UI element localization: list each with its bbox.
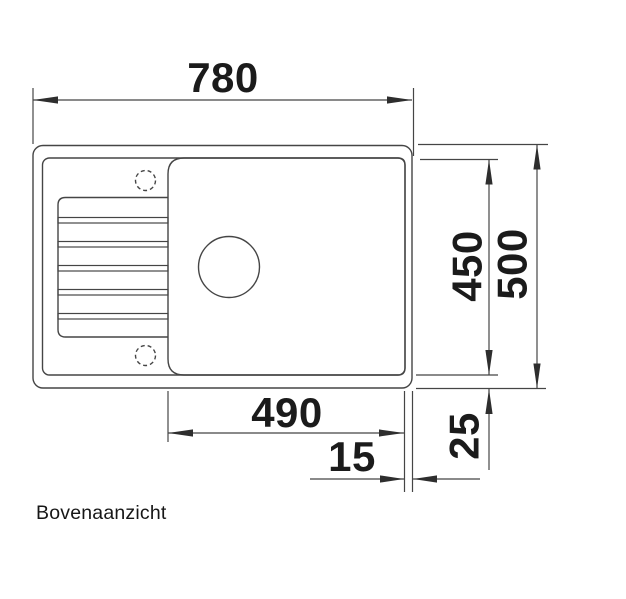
bowl-outline — [168, 158, 405, 375]
sink-outer-edge — [33, 146, 412, 389]
drainboard-groove — [58, 266, 168, 272]
arrow-up-icon — [533, 145, 540, 170]
drainboard-outline — [58, 198, 168, 338]
arrow-left-icon — [413, 475, 437, 482]
arrow-down-icon — [485, 350, 492, 375]
dim-label-bowl-width: 490 — [212, 391, 362, 435]
dim-label-inner-depth: 450 — [446, 191, 490, 342]
dim-label-rim-inset: 15 — [302, 435, 402, 479]
arrow-right-icon — [387, 96, 412, 103]
sink-technical-drawing: 780 490 15 450 500 25 Bovenaanzicht — [0, 0, 626, 599]
drainboard — [58, 198, 168, 338]
drainboard-groove — [58, 218, 168, 224]
drain-hole — [199, 237, 260, 298]
arrow-left-icon — [168, 429, 193, 436]
drainboard-groove — [58, 242, 168, 248]
tap-hole-top — [136, 171, 156, 191]
dim-label-total-width: 780 — [148, 56, 298, 100]
sink-inner-rim — [43, 158, 406, 375]
arrow-left-icon — [33, 96, 58, 103]
drawing-caption: Bovenaanzicht — [36, 502, 167, 525]
drainboard-groove — [58, 314, 168, 320]
dim-label-edge-offset: 25 — [443, 386, 487, 487]
dim-label-total-depth: 500 — [491, 189, 535, 340]
sink-outline — [33, 146, 412, 389]
drainboard-groove — [58, 290, 168, 296]
arrow-down-icon — [533, 364, 540, 389]
arrow-up-icon — [485, 160, 492, 185]
tap-hole-bottom — [136, 346, 156, 366]
